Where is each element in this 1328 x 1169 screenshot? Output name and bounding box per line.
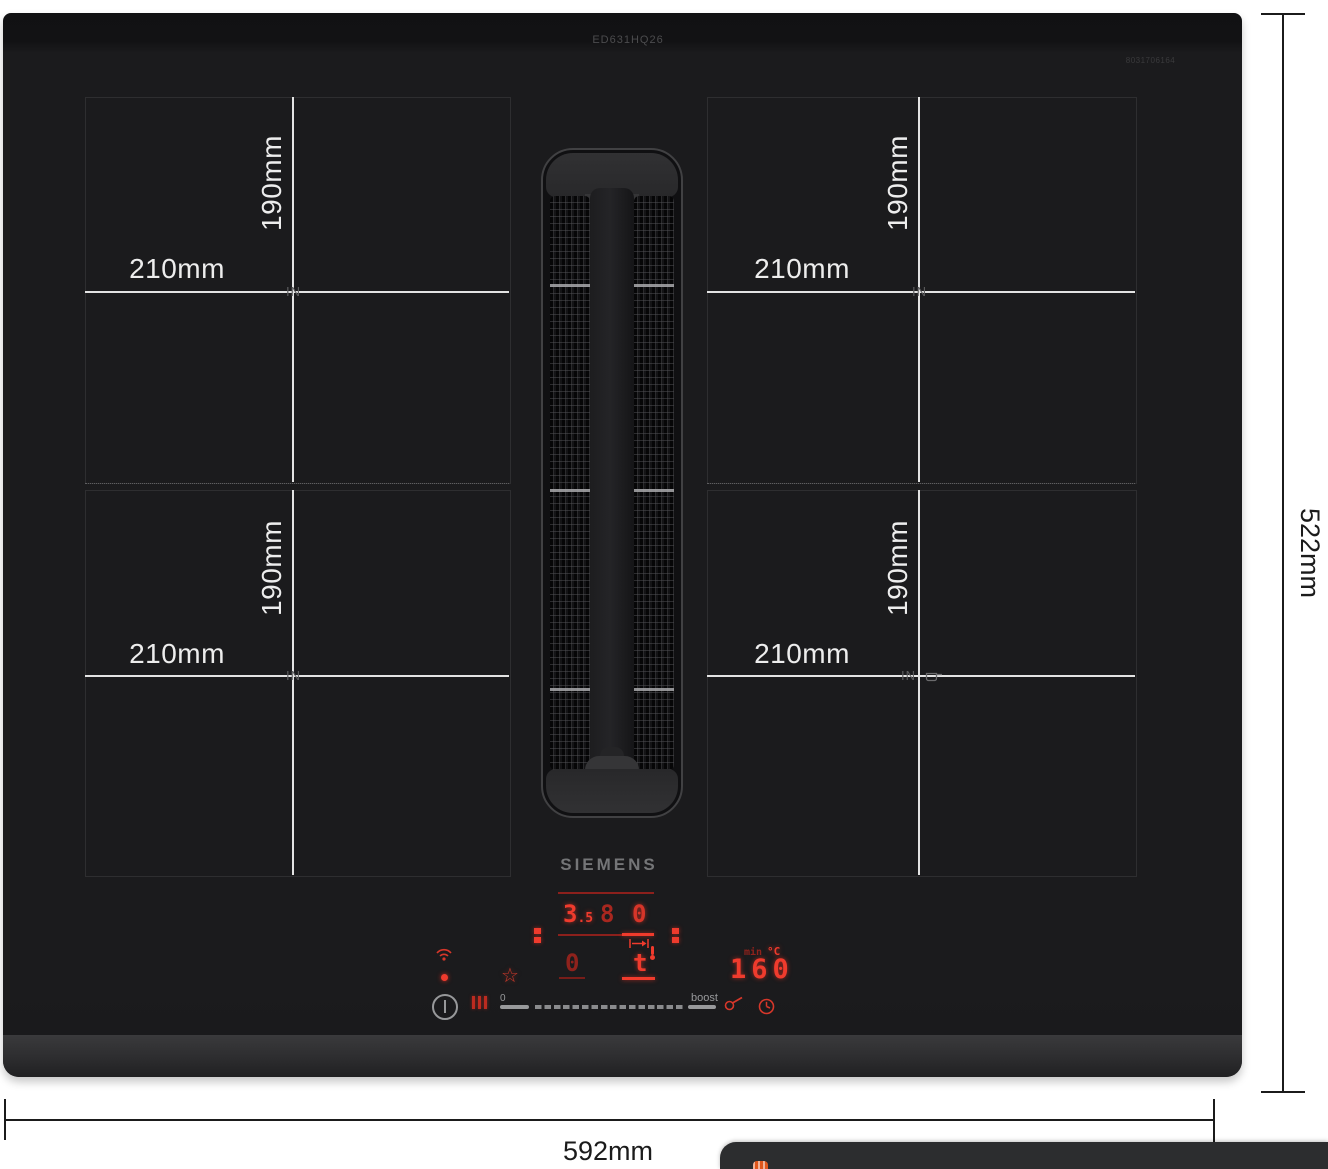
power-level-display-right: 0: [632, 900, 646, 928]
power-button[interactable]: [432, 994, 458, 1020]
induction-marker-bottom-right: IN: [901, 668, 916, 683]
temperature-display: 160: [730, 954, 794, 985]
slider-zero-label: 0: [500, 993, 506, 1004]
vent-filter-divider: [634, 284, 674, 287]
vent-bottom-cap: [546, 769, 678, 813]
induction-hob: ED631HQ26 8031706164 190mm 190mm 190mm 1…: [3, 13, 1242, 1077]
zone-height-label-top-right: 190mm: [878, 125, 918, 241]
zone-select-indicator-left: [534, 928, 541, 943]
zone-width-label-bottom-right: 210mm: [742, 638, 862, 670]
zone-width-label-top-left: 210mm: [117, 253, 237, 285]
cooking-zone-bottom-right: [707, 490, 1137, 877]
height-dimension-tick-bottom: [1261, 1091, 1305, 1093]
induction-marker-top-left: IN: [286, 284, 301, 299]
display-mid-line-dim: [558, 934, 622, 936]
width-dimension-tick-left: [4, 1099, 6, 1140]
vent-grille-left: [550, 196, 590, 770]
zone-width-label-bottom-left: 210mm: [117, 638, 237, 670]
display-top-line: [558, 892, 654, 894]
zone-height-label-top-left: 190mm: [252, 125, 292, 241]
width-dimension-label: 592mm: [547, 1136, 669, 1167]
vent-bottom-knob-small: [600, 747, 624, 756]
vent-filter-divider: [550, 284, 590, 287]
vent-module: [541, 148, 683, 818]
flex-zone-divider-right: [707, 483, 1135, 484]
induction-marker-top-right: IN: [912, 284, 927, 299]
vent-center-bar: [590, 188, 634, 778]
model-code: ED631HQ26: [563, 34, 693, 46]
display-mid-line-bright: [622, 933, 654, 936]
power-level-display-center: 8: [600, 900, 614, 928]
status-led: [441, 974, 448, 981]
zone-height-label-bottom-left: 190mm: [252, 510, 292, 626]
power-level-left-main: 3: [563, 900, 577, 928]
slider-boost-segment[interactable]: [688, 1005, 716, 1009]
favorite-star-icon[interactable]: ☆: [501, 966, 519, 986]
power-level-left-sub: .5: [577, 911, 593, 926]
vent-underline-bright: [622, 977, 655, 980]
hob-front-bevel: [3, 1035, 1242, 1077]
height-dimension-line: [1282, 13, 1284, 1093]
crosshair-horizontal-bottom-right: [707, 675, 1135, 677]
vent-underline-dim: [559, 977, 585, 979]
zone-select-indicator-right: [672, 928, 679, 943]
crosshair-vertical-bottom-right: [918, 490, 920, 875]
page: ED631HQ26 8031706164 190mm 190mm 190mm 1…: [0, 0, 1328, 1169]
vent-mode-display: t: [633, 949, 647, 977]
vent-filter-divider: [550, 489, 590, 492]
zone-height-label-bottom-right: 190mm: [878, 510, 918, 626]
siemens-logo: SIEMENS: [529, 855, 689, 875]
power-slider[interactable]: [535, 1005, 685, 1009]
height-dimension-tick-top: [1261, 13, 1305, 15]
cooking-sensor-spoon-icon[interactable]: [724, 994, 744, 1011]
timer-clock-icon[interactable]: [758, 998, 775, 1015]
vent-filter-divider: [550, 688, 590, 691]
wifi-icon: [435, 947, 453, 961]
vent-level-display: 0: [565, 949, 579, 977]
vent-filter-divider: [634, 688, 674, 691]
fry-sensor-pan-icon: [925, 670, 943, 682]
power-level-display-left: 3.5: [563, 900, 593, 928]
width-dimension-tick-right: [1213, 1099, 1215, 1147]
cookie-icon: [753, 1161, 768, 1169]
thermometer-icon: [651, 946, 655, 960]
corner-code: 8031706164: [1113, 56, 1188, 65]
transfer-arrow-icon: [629, 939, 649, 948]
induction-marker-bottom-left: IN: [286, 668, 301, 683]
height-dimension-label: 522mm: [1292, 495, 1328, 611]
width-dimension-line: [4, 1119, 1215, 1121]
boost-label[interactable]: boost: [691, 992, 718, 1004]
vent-filter-divider: [634, 489, 674, 492]
cooking-zone-bottom-left: [85, 490, 511, 877]
slider-start-segment[interactable]: [500, 1005, 529, 1009]
zone-width-label-top-right: 210mm: [742, 253, 862, 285]
vent-grille-right: [634, 196, 674, 770]
cookie-banner[interactable]: [720, 1142, 1328, 1169]
flex-zone-divider-left: [85, 483, 509, 484]
pause-button[interactable]: [472, 996, 487, 1009]
